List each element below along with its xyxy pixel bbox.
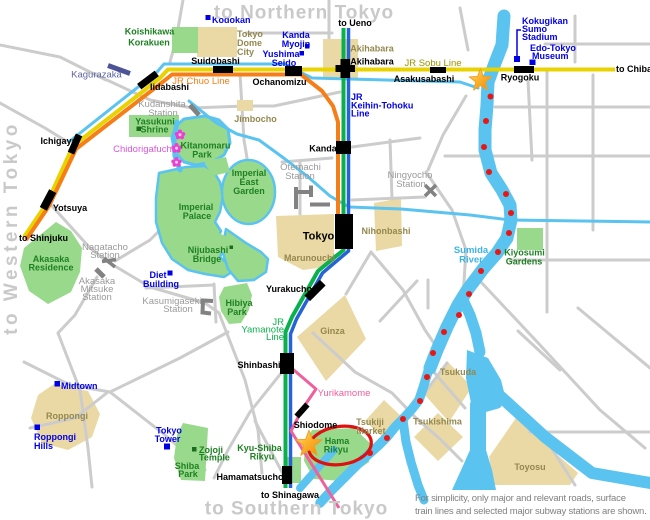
svg-text:Line: Line (351, 109, 370, 119)
svg-text:Shiodome: Shiodome (294, 420, 338, 430)
svg-text:Kagurazaka: Kagurazaka (71, 70, 122, 81)
svg-text:Shinbashi: Shinbashi (237, 360, 280, 370)
svg-text:to Shinjuku: to Shinjuku (19, 233, 68, 243)
svg-text:Kanda: Kanda (309, 144, 338, 154)
svg-text:Midtown: Midtown (61, 381, 98, 391)
svg-text:Station: Station (396, 179, 426, 190)
svg-text:Chidorigafuchi: Chidorigafuchi (113, 144, 174, 155)
svg-text:Line: Line (266, 332, 284, 343)
svg-text:Toyosu: Toyosu (514, 462, 545, 472)
svg-text:Seido: Seido (272, 58, 297, 68)
svg-text:Tsukishima: Tsukishima (413, 417, 463, 427)
svg-text:Hamamatsucho: Hamamatsucho (216, 472, 284, 482)
svg-text:Station: Station (90, 250, 120, 261)
svg-text:JR Sobu Line: JR Sobu Line (404, 58, 461, 69)
svg-text:Korakuen: Korakuen (128, 38, 170, 48)
svg-text:to Northern Tokyo: to Northern Tokyo (214, 3, 394, 24)
svg-text:Yotsuya: Yotsuya (53, 203, 88, 213)
svg-text:Tower: Tower (155, 434, 181, 444)
svg-text:Koishikawa: Koishikawa (125, 27, 176, 37)
svg-text:Yurakucho: Yurakucho (266, 284, 313, 294)
svg-text:Ryogoku: Ryogoku (501, 73, 540, 83)
svg-text:to Chiba: to Chiba (616, 64, 650, 74)
svg-text:Station: Station (285, 171, 315, 182)
svg-text:Rikyu: Rikyu (250, 452, 275, 462)
svg-text:Roppongi: Roppongi (46, 411, 88, 421)
svg-text:Station: Station (148, 108, 178, 119)
svg-text:Tsukuda: Tsukuda (440, 367, 477, 377)
svg-text:Nihonbashi: Nihonbashi (362, 226, 411, 236)
svg-text:Garden: Garden (233, 186, 265, 196)
svg-text:Tokyo: Tokyo (303, 231, 335, 243)
svg-text:Market: Market (356, 426, 385, 436)
svg-text:Temple: Temple (199, 453, 230, 463)
svg-text:Gardens: Gardens (506, 257, 543, 267)
svg-text:Rikyu: Rikyu (324, 445, 349, 455)
svg-text:Hills: Hills (34, 441, 53, 451)
svg-text:JR Chuo Line: JR Chuo Line (172, 76, 230, 87)
svg-text:Ichigaya: Ichigaya (40, 136, 77, 146)
svg-text:Park: Park (192, 150, 213, 160)
svg-text:Asakusabashi: Asakusabashi (394, 74, 455, 84)
svg-text:Ginza: Ginza (320, 326, 345, 336)
svg-text:Marunouchi: Marunouchi (284, 253, 335, 263)
svg-text:City: City (237, 47, 254, 57)
svg-text:Yurikamome: Yurikamome (318, 388, 371, 399)
svg-text:Station: Station (163, 304, 193, 315)
svg-text:Park: Park (227, 307, 248, 317)
svg-text:Building: Building (143, 279, 179, 289)
svg-text:Jimbocho: Jimbocho (234, 114, 277, 124)
svg-text:Bridge: Bridge (193, 254, 222, 264)
svg-text:Akihabara: Akihabara (350, 44, 395, 54)
svg-text:Stadium: Stadium (522, 32, 558, 42)
svg-text:Ochanomizu: Ochanomizu (252, 77, 306, 87)
svg-text:Palace: Palace (183, 211, 212, 221)
svg-text:River: River (459, 255, 483, 266)
svg-text:to Southern Tokyo: to Southern Tokyo (205, 499, 388, 520)
svg-text:Shrine: Shrine (140, 125, 168, 135)
svg-text:For simplicity, only major and: For simplicity, only major and relevant … (415, 493, 626, 504)
svg-text:Station: Station (82, 292, 112, 303)
svg-text:Suidobashi: Suidobashi (191, 56, 240, 66)
svg-text:to Western Tokyo: to Western Tokyo (1, 121, 22, 335)
svg-text:Park: Park (178, 469, 199, 479)
svg-text:Residence: Residence (28, 263, 73, 273)
svg-text:Akihabara: Akihabara (350, 57, 395, 67)
svg-text:Museum: Museum (532, 51, 569, 61)
svg-text:train lines and selected major: train lines and selected major subway st… (415, 506, 647, 517)
